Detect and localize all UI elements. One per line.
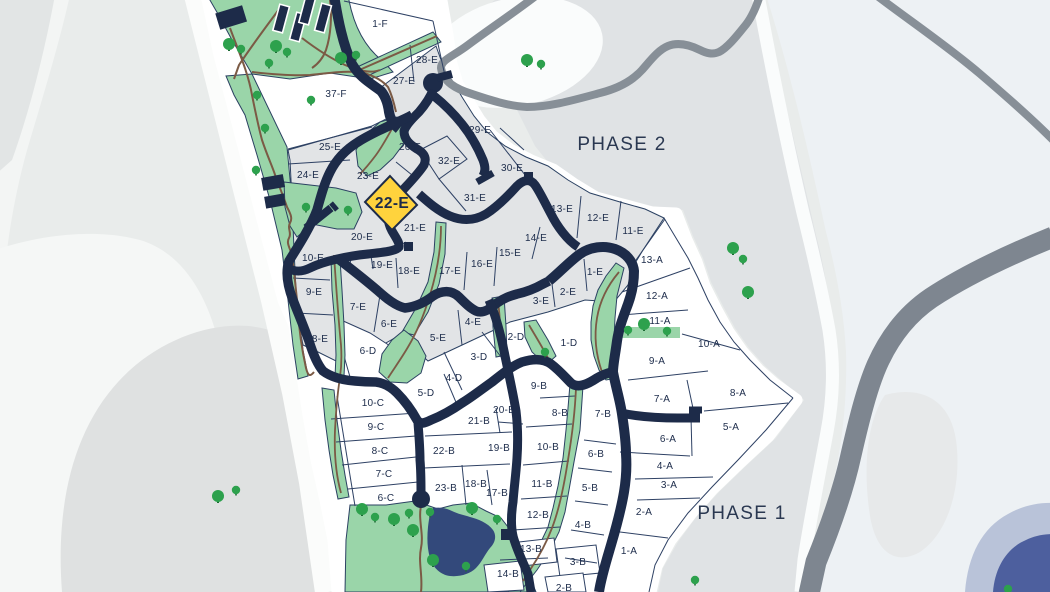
svg-text:6-C: 6-C (378, 493, 395, 504)
svg-text:18-B: 18-B (465, 479, 487, 490)
svg-text:18-E: 18-E (398, 266, 420, 277)
svg-text:6-A: 6-A (660, 434, 676, 445)
svg-text:21-E: 21-E (404, 223, 426, 234)
svg-text:11-A: 11-A (649, 316, 670, 327)
svg-text:9-A: 9-A (649, 356, 665, 367)
svg-text:1-E: 1-E (587, 267, 603, 278)
svg-text:3-B: 3-B (570, 557, 586, 568)
svg-text:2-B: 2-B (556, 583, 572, 592)
svg-text:PHASE 2: PHASE 2 (577, 134, 666, 155)
svg-text:9-C: 9-C (368, 422, 385, 433)
svg-text:13-A: 13-A (641, 255, 663, 266)
svg-text:28-E: 28-E (416, 55, 438, 66)
svg-text:7-C: 7-C (376, 469, 393, 480)
svg-text:32-E: 32-E (438, 156, 460, 167)
svg-text:10-E: 10-E (302, 253, 324, 264)
svg-text:11-B: 11-B (531, 479, 552, 490)
svg-text:31-E: 31-E (464, 193, 486, 204)
svg-text:4-A: 4-A (657, 461, 673, 472)
svg-text:37-F: 37-F (325, 89, 346, 100)
svg-text:12-E: 12-E (587, 213, 609, 224)
svg-text:23-E: 23-E (357, 171, 379, 182)
svg-text:15-E: 15-E (499, 248, 521, 259)
svg-text:5-B: 5-B (582, 483, 598, 494)
svg-text:13-E: 13-E (551, 204, 573, 215)
svg-text:22-B: 22-B (433, 446, 455, 457)
svg-text:PHASE 1: PHASE 1 (697, 503, 786, 524)
svg-text:5-E: 5-E (430, 333, 446, 344)
svg-text:19-E: 19-E (371, 260, 393, 271)
svg-text:17-B: 17-B (486, 488, 508, 499)
svg-text:27-E: 27-E (393, 76, 415, 87)
svg-text:4-D: 4-D (446, 373, 463, 384)
svg-text:4-B: 4-B (575, 520, 591, 531)
svg-text:2-D: 2-D (508, 332, 525, 343)
svg-text:10-C: 10-C (362, 398, 384, 409)
svg-text:17-E: 17-E (439, 266, 461, 277)
svg-text:3-A: 3-A (661, 480, 677, 491)
svg-text:24-E: 24-E (297, 170, 319, 181)
svg-text:29-E: 29-E (469, 125, 491, 136)
svg-text:16-E: 16-E (471, 259, 493, 270)
svg-text:12-A: 12-A (646, 291, 668, 302)
svg-text:1-A: 1-A (621, 546, 637, 557)
svg-text:5-D: 5-D (418, 388, 435, 399)
svg-text:7-A: 7-A (654, 394, 670, 405)
svg-text:8-A: 8-A (730, 388, 746, 399)
svg-text:6-D: 6-D (360, 346, 377, 357)
svg-text:4-E: 4-E (465, 317, 481, 328)
svg-text:10-B: 10-B (537, 442, 559, 453)
svg-text:5-A: 5-A (723, 422, 739, 433)
svg-text:13-B: 13-B (520, 544, 542, 555)
svg-text:7-E: 7-E (350, 302, 366, 313)
svg-text:25-E: 25-E (319, 142, 341, 153)
svg-text:26-E: 26-E (399, 142, 421, 153)
svg-text:22-E: 22-E (375, 195, 409, 212)
svg-text:9-E: 9-E (306, 287, 322, 298)
svg-text:8-C: 8-C (372, 446, 389, 457)
svg-text:12-B: 12-B (527, 510, 549, 521)
svg-text:10-A: 10-A (698, 339, 720, 350)
svg-text:2-A: 2-A (636, 507, 652, 518)
svg-text:9-B: 9-B (531, 381, 547, 392)
svg-text:6-B: 6-B (588, 449, 604, 460)
svg-text:21-B: 21-B (468, 416, 490, 427)
svg-text:1-F: 1-F (372, 19, 388, 30)
svg-text:7-B: 7-B (595, 409, 611, 420)
svg-text:6-E: 6-E (381, 319, 397, 330)
svg-text:14-B: 14-B (497, 569, 519, 580)
svg-text:1-D: 1-D (561, 338, 578, 349)
svg-text:30-E: 30-E (501, 163, 523, 174)
svg-text:3-E: 3-E (533, 296, 549, 307)
svg-text:19-B: 19-B (488, 443, 510, 454)
svg-text:8-B: 8-B (552, 408, 568, 419)
svg-text:11-E: 11-E (622, 226, 643, 237)
svg-text:3-D: 3-D (471, 352, 488, 363)
svg-text:2-E: 2-E (560, 287, 576, 298)
svg-text:23-B: 23-B (435, 483, 457, 494)
svg-text:14-E: 14-E (525, 233, 547, 244)
svg-text:8-E: 8-E (312, 334, 328, 345)
svg-text:20-E: 20-E (351, 232, 373, 243)
svg-text:20-B: 20-B (493, 405, 515, 416)
